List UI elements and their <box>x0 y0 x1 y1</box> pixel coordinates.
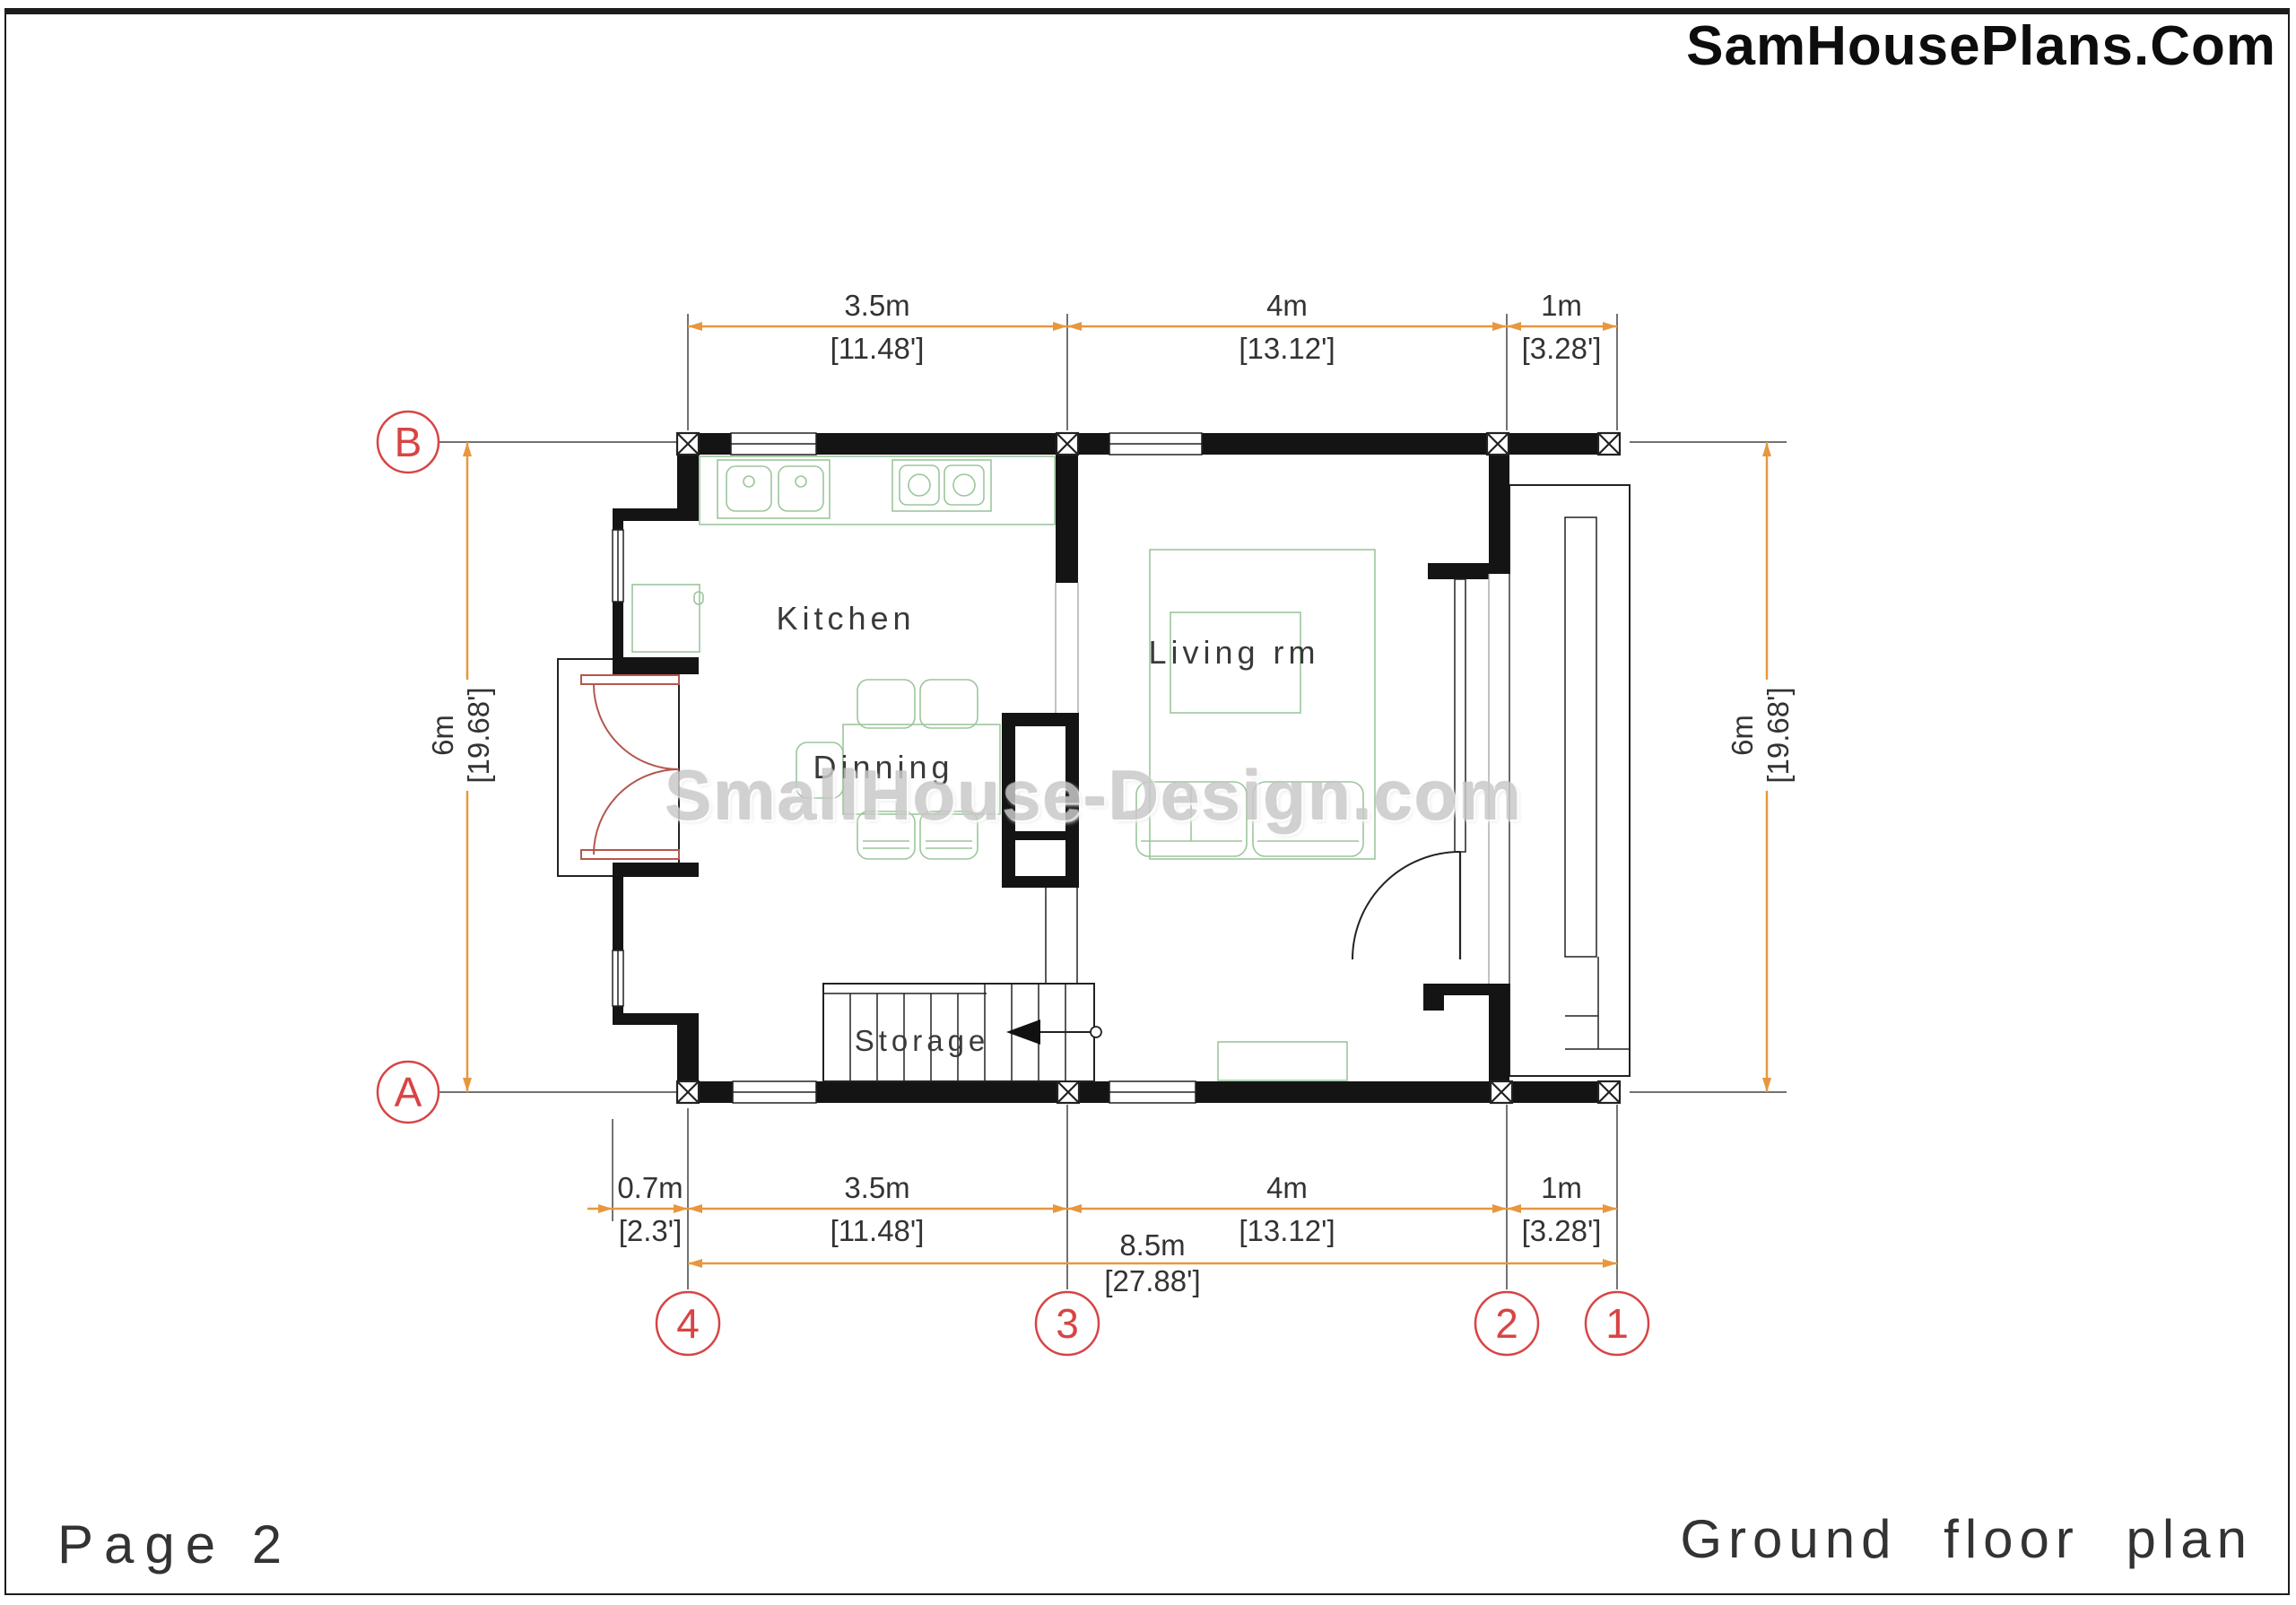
dim-bot-1-ft: [2.3'] <box>619 1214 683 1247</box>
dim-bot-3-ft: [13.12'] <box>1239 1214 1335 1247</box>
dim-top-1-m: 3.5m <box>844 289 909 322</box>
svg-text:3: 3 <box>1056 1300 1079 1347</box>
sofa <box>1136 782 1363 856</box>
window <box>613 950 623 1006</box>
dimension-right: 6m [19.68'] <box>1726 442 1795 1092</box>
dimension-bottom-total: 8.5m [27.88'] <box>688 1228 1617 1297</box>
window <box>613 530 623 602</box>
floor-plan-drawing: 3.5m [11.48'] 4m [13.12'] 1m [3.28'] 6m … <box>0 0 2296 1605</box>
label-kitchen: Kitchen <box>776 600 915 637</box>
dim-top-1-ft: [11.48'] <box>831 332 925 365</box>
dim-total-m: 8.5m <box>1119 1228 1185 1262</box>
window <box>731 433 816 455</box>
walls <box>613 433 1620 1103</box>
column <box>1598 1081 1620 1103</box>
dim-bot-2-m: 3.5m <box>844 1171 909 1204</box>
window <box>1109 1081 1196 1103</box>
svg-text:4: 4 <box>676 1300 700 1347</box>
living-room-furniture <box>1136 550 1375 1080</box>
svg-text:A: A <box>395 1069 422 1115</box>
kitchen-stove <box>892 460 991 511</box>
column <box>677 433 699 455</box>
plan-title: Ground floor plan <box>1680 1508 2253 1570</box>
chair <box>920 680 978 728</box>
window <box>733 1081 816 1103</box>
label-living: Living rm <box>1148 634 1319 671</box>
door-swing-arc <box>1352 852 1460 959</box>
dim-top-2-ft: [13.12'] <box>1239 332 1335 365</box>
column <box>1598 433 1620 455</box>
entry-porch <box>558 659 679 876</box>
window <box>1109 433 1202 455</box>
column <box>1491 1081 1512 1103</box>
svg-text:1: 1 <box>1605 1300 1629 1347</box>
tv-console <box>1218 1042 1347 1080</box>
dim-top-3-m: 1m <box>1541 289 1582 322</box>
dim-total-ft: [27.88'] <box>1104 1264 1200 1297</box>
label-dining: Dinning <box>813 749 953 785</box>
fridge <box>632 585 703 652</box>
dim-left-ft: [19.68'] <box>462 687 495 783</box>
chair <box>857 811 915 859</box>
glass-panel <box>1455 579 1465 852</box>
dim-bot-1-m: 0.7m <box>617 1171 683 1204</box>
kitchen-sink <box>717 460 830 518</box>
dim-left-m: 6m <box>426 715 459 756</box>
column <box>1057 433 1078 455</box>
svg-text:B: B <box>395 419 422 465</box>
chair <box>920 811 978 859</box>
chair <box>857 680 915 728</box>
svg-text:2: 2 <box>1495 1300 1518 1347</box>
rug <box>1150 550 1375 859</box>
dim-bot-2-ft: [11.48'] <box>831 1214 925 1247</box>
living-room-doors <box>1352 579 1465 959</box>
dim-bot-3-m: 4m <box>1266 1171 1308 1204</box>
dim-bot-4-ft: [3.28'] <box>1522 1214 1602 1247</box>
dimension-bottom-row: 0.7m [2.3'] 3.5m [11.48'] 4m [13.12'] 1m… <box>587 1171 1617 1247</box>
column <box>1057 1081 1079 1103</box>
dim-right-m: 6m <box>1726 715 1759 756</box>
dim-top-2-m: 4m <box>1266 289 1308 322</box>
dim-bot-4-m: 1m <box>1541 1171 1582 1204</box>
column <box>1487 433 1509 455</box>
dim-right-ft: [19.68'] <box>1761 687 1795 783</box>
dim-top-3-ft: [3.28'] <box>1522 332 1602 365</box>
dimension-left: 6m [19.68'] <box>426 442 495 1092</box>
page-number: Page 2 <box>57 1514 292 1575</box>
label-storage: Storage <box>855 1024 990 1057</box>
terrace <box>1509 485 1630 1076</box>
dimension-top: 3.5m [11.48'] 4m [13.12'] 1m [3.28'] <box>688 289 1617 365</box>
column <box>677 1081 699 1103</box>
